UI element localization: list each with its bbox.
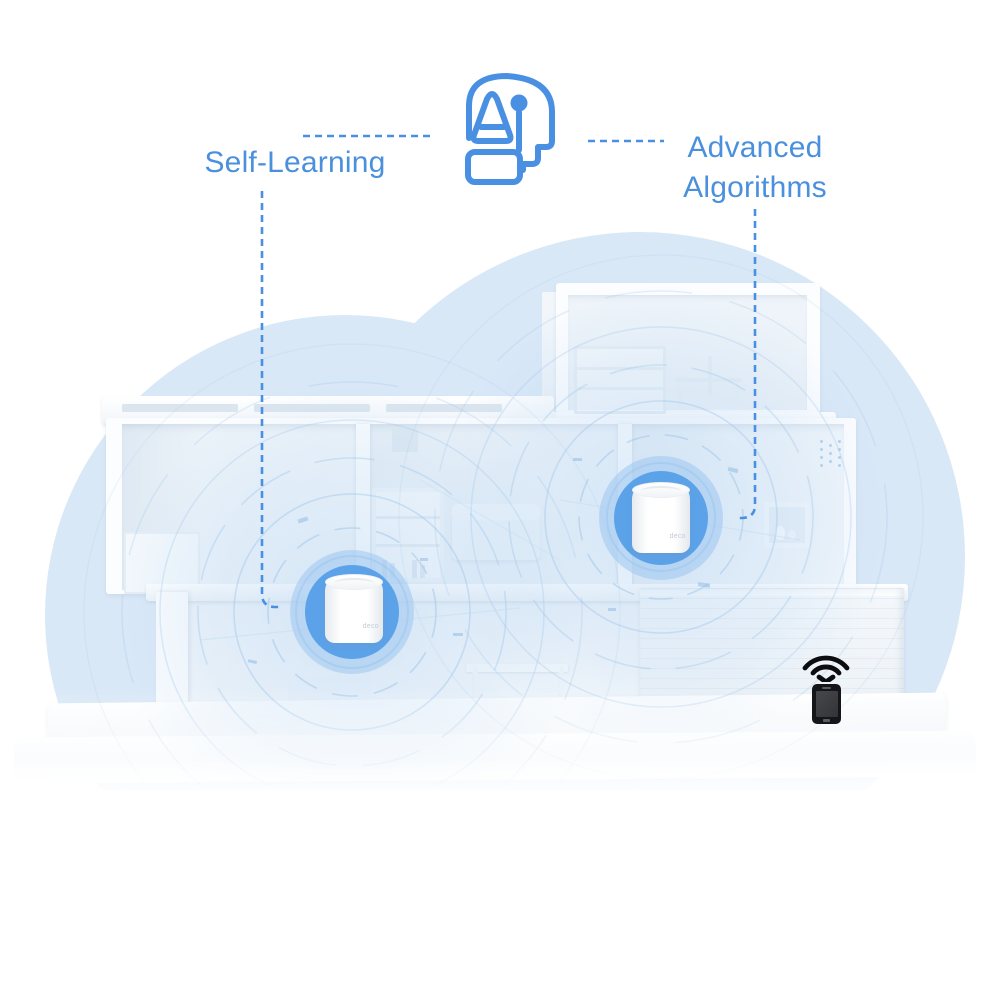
smartphone-icon bbox=[812, 684, 841, 724]
phone-screen bbox=[816, 691, 838, 717]
ai-letter-a bbox=[474, 94, 511, 141]
advanced-label-line1: Advanced bbox=[655, 128, 855, 168]
wifi-signal-icon bbox=[796, 646, 856, 682]
deco-unit-1-seam bbox=[334, 578, 374, 588]
product-illustration: Self-Learning Advanced Algorithms deco d… bbox=[0, 0, 1000, 1000]
ai-head-icon bbox=[448, 64, 568, 194]
deco-logo-label: deco bbox=[670, 533, 686, 540]
deco-logo-label: deco bbox=[363, 623, 379, 630]
self-learning-label: Self-Learning bbox=[170, 146, 420, 180]
deco-unit-2-seam bbox=[641, 486, 681, 496]
wifi-down-chevron bbox=[819, 677, 833, 682]
client-device bbox=[796, 646, 856, 728]
phone-speaker bbox=[822, 687, 831, 689]
ai-node-dot bbox=[511, 95, 528, 112]
advanced-algorithms-label: Advanced Algorithms bbox=[655, 128, 855, 208]
bottom-white-area bbox=[0, 790, 1000, 1000]
wifi-inner-arc bbox=[813, 667, 839, 673]
advanced-label-line2: Algorithms bbox=[655, 168, 855, 208]
ai-jaw-block bbox=[468, 152, 520, 182]
phone-home-button bbox=[823, 719, 830, 722]
